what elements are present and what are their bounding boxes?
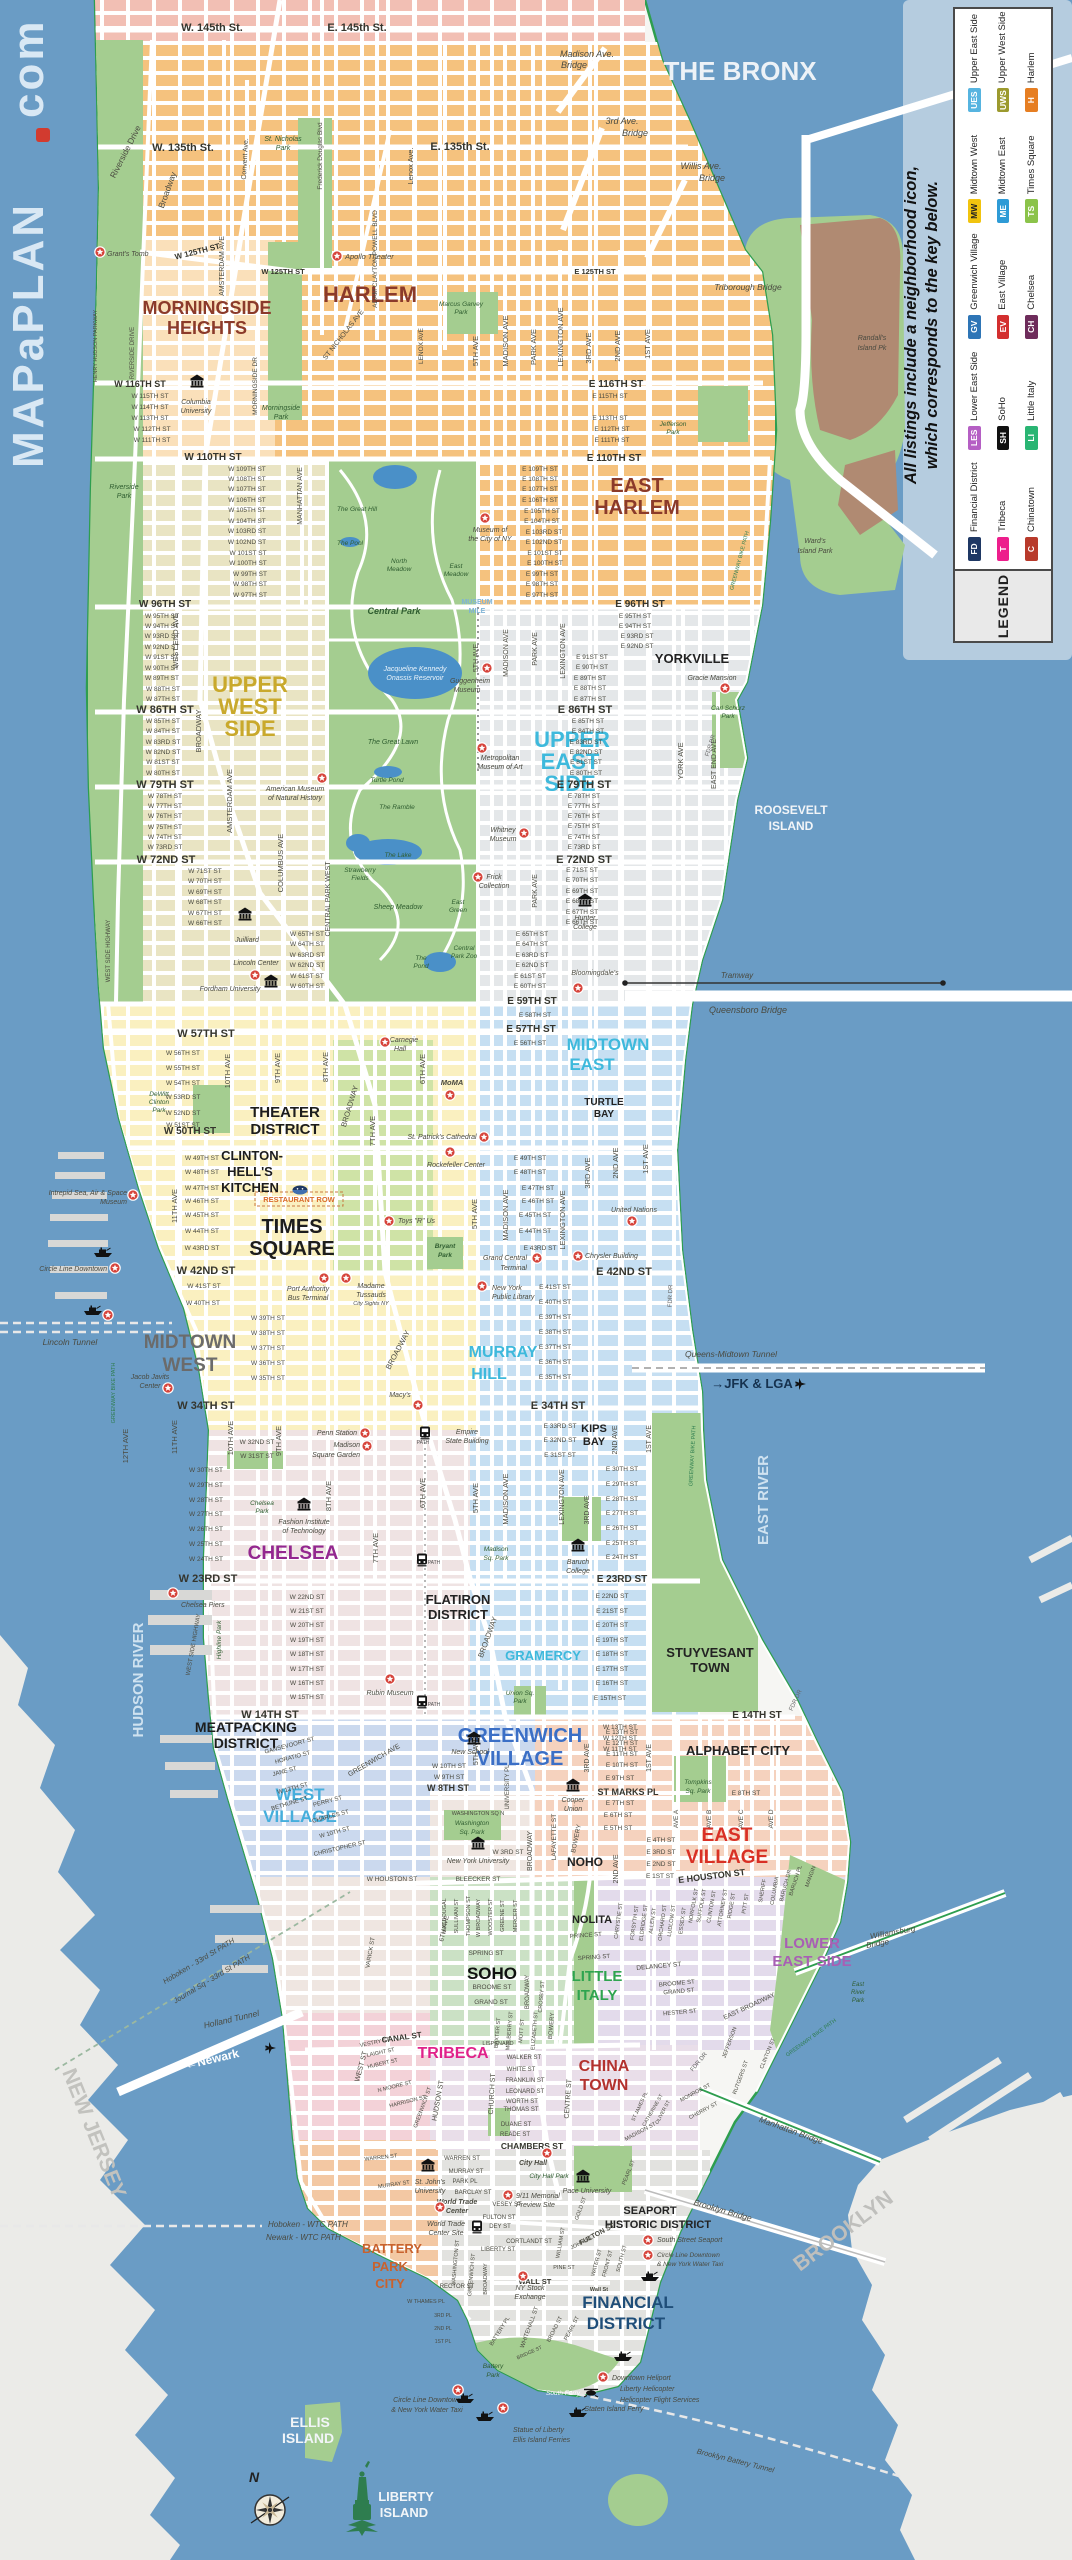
map-label: FDR DR (668, 1284, 675, 1308)
map-label: FLATIRON (426, 1592, 491, 1607)
map-label: 7TH AVE (371, 1533, 380, 1563)
map-label: GREENE ST (500, 1899, 506, 1931)
map-label: City Sights NY (353, 1301, 389, 1307)
map-label: E 93RD ST (621, 633, 654, 640)
map-label: E 14TH ST (732, 1710, 781, 1721)
legend-item-t: TTribeca (997, 460, 1010, 561)
map-label: Union Sq. (506, 1690, 535, 1697)
map-label: Turtle Pond (370, 777, 404, 784)
map-label: CLINTON- (221, 1148, 283, 1163)
map-label: Willis Ave. (681, 161, 722, 171)
map-label: 2ND AVE (611, 1147, 620, 1178)
map-label: St. John's (415, 2179, 446, 2186)
map-label: Circle Line Downtown (657, 2252, 720, 2259)
map-label: SQUARE (249, 1238, 335, 1260)
map-label: W 22ND ST (290, 1594, 325, 1601)
badge-icon (168, 1588, 178, 1598)
map-label: 3RD AVE (583, 1157, 592, 1188)
map-label: E 100TH ST (527, 560, 563, 567)
map-label: W 18TH ST (290, 1651, 324, 1658)
map-label: Onassis Reservoir (386, 675, 444, 682)
map-label: Frederick Douglas Blvd (317, 122, 324, 190)
map-label: Frick (486, 874, 502, 881)
map-label: East (449, 563, 463, 570)
map-label: E 109TH ST (522, 466, 558, 473)
map-label: E 3RD ST (646, 1849, 675, 1856)
map-label: University (181, 408, 212, 415)
legend-label: Tribeca (997, 501, 1008, 532)
map-label: 10TH AVE (223, 1054, 232, 1088)
map-label: E 87TH ST (574, 696, 606, 703)
map-label: Guggenheim (450, 678, 490, 685)
map-label: AVE B (706, 1810, 713, 1829)
map-label: E 33RD ST (544, 1423, 577, 1430)
map-label: E 25TH ST (606, 1540, 638, 1547)
map-label: E 101ST ST (527, 550, 562, 557)
badge-icon (498, 2403, 508, 2413)
map-label: Island Pk (858, 345, 887, 352)
map-label: E 113TH ST (592, 415, 627, 422)
map-label: E 81ST ST (570, 759, 602, 766)
legend-item-h: HHarlem (1025, 11, 1038, 112)
badge-icon (518, 2271, 528, 2281)
map-label: Ward's (804, 538, 826, 545)
map-label: AMSTERDAM AVE (225, 769, 234, 833)
map-label: Statue of Liberty (513, 2427, 564, 2434)
map-label: Terminal (500, 1265, 527, 1272)
map-label: Grand Central (483, 1255, 527, 1262)
badge-icon (627, 1216, 637, 1226)
map-label: & New York Water Taxi (657, 2261, 724, 2268)
map-label: & New York Water Taxi (391, 2407, 463, 2414)
map-label: HEIGHTS (167, 318, 247, 338)
map-label: W 97TH ST (233, 592, 267, 599)
map-label: W 8TH ST (427, 1783, 470, 1793)
map-label: SOHO (467, 1964, 517, 1983)
map-label: Queens-Midtown Tunnel (685, 1349, 778, 1359)
map-label: LOWER (784, 1935, 840, 1952)
map-label: Highline Park (216, 1620, 223, 1659)
map-label: W 125TH ST (261, 267, 305, 276)
map-label: Madison (334, 1442, 361, 1449)
map-label: MUSEUM (461, 599, 492, 606)
map-label: Tompkins (684, 1779, 712, 1786)
map-label: W 51ST ST (166, 1122, 200, 1129)
map-label: E 1ST ST (646, 1873, 674, 1880)
map-label: E 12TH ST (606, 1740, 638, 1747)
map-label: NOLITA (572, 1914, 612, 1926)
badge-icon (473, 872, 483, 882)
map-label: E 56TH ST (514, 1040, 546, 1047)
map-label: Park (666, 429, 680, 436)
legend-badge-ues: UES (968, 88, 981, 112)
badge-icon (163, 1383, 173, 1393)
map-label: W 73RD ST (148, 844, 183, 851)
map-label: The Ramble (379, 804, 415, 811)
badge-icon (532, 1253, 542, 1263)
map-label: E 17TH ST (596, 1666, 628, 1673)
map-label: W 71ST ST (188, 868, 222, 875)
map-label: W 53RD ST (166, 1094, 201, 1101)
legend-note-line1: All listings include a neighborhood icon… (901, 5, 922, 645)
map-label: Randall's (858, 335, 887, 342)
badge-icon (384, 1216, 394, 1226)
map-label: WEST SIDE HIGHWAY (106, 920, 112, 983)
map-label: E 63RD ST (516, 952, 549, 959)
map-label: Central (454, 945, 476, 952)
map-label: E 104TH ST (524, 518, 560, 525)
legend-label: Midtown East (997, 137, 1008, 194)
map-label: Park (513, 1698, 527, 1705)
map-label: W 70TH ST (188, 878, 222, 885)
map-label: W 98TH ST (233, 581, 267, 588)
legend-column-5: UESUpper East SideUWSUpper West SideHHar… (955, 9, 1051, 120)
map-label: Sq. Park (460, 1829, 486, 1836)
badge-icon (573, 983, 583, 993)
map-label: E 79TH ST (557, 779, 612, 791)
map-label: E 102ND ST (526, 539, 563, 546)
map-label: W 104TH ST (228, 518, 266, 525)
map-label: COLUMBUS AVE (276, 834, 285, 893)
map-label: EAST SIDE (772, 1953, 851, 1970)
map-label: E 4TH ST (647, 1837, 676, 1844)
legend-badge-ts: TS (1025, 199, 1038, 223)
map-label: LAFAYETTE ST (551, 1814, 558, 1861)
map-label: Cooper (562, 1797, 586, 1804)
map-label: Grant's Tomb (107, 251, 149, 258)
legend-title: LEGEND (955, 569, 1051, 641)
map-label: Pace University (563, 2188, 612, 2195)
map-label: W 108TH ST (228, 476, 266, 483)
map-label: HISTORIC DISTRICT (605, 2219, 711, 2231)
map-label: DUANE ST (501, 2122, 532, 2128)
badge-icon (128, 1190, 138, 1200)
map-label: E 60TH ST (514, 983, 546, 990)
map-label: E 2ND ST (646, 1861, 675, 1868)
map-label: VILLAGE (686, 1847, 768, 1868)
badge-icon (643, 2250, 653, 2260)
map-label: E 72ND ST (556, 854, 612, 866)
map-label: E. 145th St. (327, 22, 386, 34)
map-label: Tramway (721, 971, 754, 980)
map-label: 3RD AVE (584, 1495, 591, 1524)
map-label: E 37TH ST (539, 1344, 571, 1351)
map-label: LENOX AVE (418, 327, 425, 364)
map-label: E 85TH ST (572, 718, 604, 725)
map-label: HARLEM (323, 282, 417, 307)
map-label: NY Stock (515, 2285, 545, 2292)
map-label: W 54TH ST (166, 1080, 200, 1087)
map-label: MERCER ST (513, 1899, 519, 1932)
legend-item-c: CChinatown (1025, 460, 1038, 561)
legend-label: Financial District (969, 462, 980, 532)
map-label: E 65TH ST (516, 931, 548, 938)
map-label: PARK (372, 2259, 408, 2274)
map-label: 9TH AVE (273, 1053, 282, 1083)
map-label: W 69TH ST (188, 889, 222, 896)
map-label: MORNINGSIDE DR (252, 357, 259, 415)
map-label: Square Garden (312, 1452, 360, 1459)
map-label: KIPS (581, 1423, 607, 1435)
map-label: BROOME ST (472, 1984, 511, 1991)
map-label: KITCHEN (221, 1180, 279, 1195)
map-label: W 28TH ST (189, 1497, 223, 1504)
map-label: E 88TH ST (574, 685, 606, 692)
map-label: Jacob Javits (130, 1374, 170, 1381)
legend-label: Upper West Side (997, 11, 1008, 83)
map-label: W 74TH ST (148, 834, 182, 841)
map-label: 3RD PL (434, 2313, 452, 2319)
map-label: E. 135th St. (430, 141, 489, 153)
map-label: W 106TH ST (228, 497, 266, 504)
map-label: EAST RIVER (755, 1455, 772, 1545)
map-label: 8TH AVE (324, 1481, 333, 1511)
map-label: Hoboken - WTC PATH (268, 2220, 348, 2229)
map-label: W 40TH ST (186, 1300, 220, 1307)
map-label: 3RD AVE (584, 332, 593, 363)
map-label: Fashion Institute (278, 1519, 329, 1526)
badge-icon (380, 1037, 390, 1047)
map-label: W 35TH ST (251, 1375, 285, 1382)
legend-item-ts: TSTimes Square (1025, 122, 1038, 223)
map-label: W 89TH ST (145, 675, 179, 682)
map-label: Apollo Theater (344, 252, 394, 261)
legend-item-ch: CHChelsea (1025, 233, 1038, 338)
map-label: W 105TH ST (228, 507, 266, 514)
map-label: Sq. Park (686, 1788, 712, 1795)
map-label: E 29TH ST (606, 1481, 638, 1488)
map-label: W 109TH ST (228, 466, 266, 473)
map-label: Jefferson (659, 421, 687, 428)
map-label: 1ST AVE (643, 329, 652, 359)
legend-item-gv: GVGreenwich Village (968, 233, 981, 338)
map-label: E 111TH ST (595, 437, 630, 444)
map-label: ISLAND (282, 2430, 334, 2446)
badge-icon (477, 743, 487, 753)
badge-icon (317, 773, 327, 783)
map-label: GRAMERCY (505, 1648, 581, 1663)
map-label: W 25TH ST (189, 1541, 223, 1548)
map-label: St. Patrick's Cathedral (407, 1134, 476, 1141)
map-label: W 39TH ST (251, 1315, 285, 1322)
badge-icon (573, 1251, 583, 1261)
map-label: E 45TH ST (519, 1212, 551, 1219)
map-label: RIVERSIDE DRIVE (130, 327, 136, 379)
legend-item-uws: UWSUpper West Side (997, 11, 1010, 112)
map-label: Battery (483, 2363, 504, 2370)
map-label: 12TH AVE (121, 1429, 130, 1463)
map-label: THEATER (250, 1104, 320, 1121)
map-label: HELL'S (227, 1164, 273, 1179)
legend-badge-mw: MW (968, 199, 981, 223)
map-label: PATH (428, 1560, 441, 1566)
map-label: E 92ND ST (621, 643, 654, 650)
map-label: North (391, 558, 407, 565)
map-label: Intrepid Sea, Air & Space (49, 1190, 127, 1197)
map-label: W 56TH ST (166, 1050, 200, 1057)
map-label: E 11TH ST (606, 1751, 638, 1758)
legend-label: Little Italy (1026, 381, 1037, 421)
map-label: E 48TH ST (514, 1169, 546, 1176)
map-label: American Museum (265, 786, 325, 793)
map-label: W 3RD ST (492, 1849, 523, 1856)
map-label: W 62ND ST (290, 962, 325, 969)
map-label: Helicopter Flight Services (620, 2397, 700, 2404)
map-label: Rockefeller Center (427, 1162, 486, 1169)
map-label: E 40TH ST (539, 1299, 571, 1306)
map-label: W 9TH ST (434, 1774, 464, 1781)
map-label: Bloomingdale's (571, 970, 619, 977)
map-label: W 32ND ST (240, 1439, 275, 1446)
map-label: FULTON ST (483, 2215, 516, 2221)
map-label: The (415, 955, 427, 962)
map-label: Meadow (387, 566, 413, 573)
legend-badge-uws: UWS (997, 88, 1010, 112)
map-label: E 41ST ST (539, 1284, 571, 1291)
badge-icon (643, 2235, 653, 2245)
badge-icon (482, 663, 492, 673)
map-label: FRANKLIN ST (505, 2078, 544, 2084)
map-label: BROADWAY (525, 1975, 531, 2009)
governors-island (608, 2474, 668, 2526)
map-label: W 67TH ST (188, 910, 222, 917)
map-label: DISTRICT (587, 2314, 666, 2333)
badge-icon (598, 2372, 608, 2382)
legend-item-les: LESLower East Side (968, 349, 981, 450)
map-label: EAST (610, 475, 663, 497)
map-label: W 65TH ST (290, 931, 324, 938)
map-label: E 61ST ST (514, 973, 546, 980)
map-screenshot: MAPaPLANcomTHE BRONXNEW JERSEYBROOKLYNHU… (0, 0, 1072, 2560)
map-label: W BROADWAY (476, 1899, 482, 1938)
map-label: E 38TH ST (539, 1329, 571, 1336)
map-label: WEST (163, 1355, 218, 1376)
map-label: PARK AVE (529, 329, 538, 365)
map-label: W 78TH ST (148, 793, 182, 800)
map-label: CHINA (579, 2058, 630, 2075)
map-label: College (566, 1568, 590, 1575)
map-label: 11TH AVE (170, 1189, 179, 1223)
map-label: MEATPACKING (195, 1719, 297, 1735)
map-label: E 19TH ST (596, 1637, 628, 1644)
map-label: W 15TH ST (290, 1694, 324, 1701)
map-label: E 108TH ST (522, 476, 558, 483)
map-label: 2ND AVE (613, 330, 622, 361)
map-label: CENTRAL PARK WEST (325, 861, 332, 937)
map-label: W 85TH ST (146, 718, 180, 725)
legend-item-li: LILittle Italy (1025, 349, 1038, 450)
badge-icon (720, 683, 730, 693)
badge-icon (445, 1147, 455, 1157)
map-label: Morningside (262, 405, 300, 412)
map-label: HARLEM (594, 497, 680, 519)
map-label: Park (152, 1107, 166, 1114)
map-label: Strawberry (344, 867, 376, 874)
map-label: RESTAURANT ROW (263, 1195, 335, 1204)
map-label: W 107TH ST (228, 486, 266, 493)
map-label: UNIVERSITY PL (505, 1764, 511, 1810)
map-label: Fordham University (200, 986, 261, 993)
legend-label: Upper East Side (969, 14, 980, 83)
legend-column-2: LESLower East SideSHSoHoLILittle Italy (955, 347, 1051, 458)
map-label: W 31ST ST (240, 1453, 274, 1460)
map-label: Gracie Mansion (687, 675, 736, 682)
badge-icon (453, 2385, 463, 2395)
map-label: Rubin Museum (366, 1690, 413, 1697)
map-label: W 81ST ST (146, 759, 180, 766)
map-label: W 19TH ST (290, 1637, 324, 1644)
map-label: Sheep Meadow (374, 904, 424, 911)
dot-icon (940, 980, 946, 986)
legend-badge-h: H (1025, 88, 1038, 112)
map-label: E 83RD ST (570, 739, 603, 746)
map-label: E 105TH ST (524, 508, 560, 515)
map-label: The Great Lawn (368, 739, 418, 746)
map-label: Lincoln Tunnel (43, 1337, 99, 1347)
map-label: Exchange (514, 2294, 545, 2301)
badge-icon (341, 1273, 351, 1283)
map-label: E 27TH ST (606, 1510, 638, 1517)
map-label: St. Nicholas (264, 136, 302, 143)
legend-badge-me: ME (997, 199, 1010, 223)
map-label: W 42ND ST (177, 1265, 236, 1277)
map-label: E 116TH ST (589, 379, 643, 390)
map-label: W 16TH ST (290, 1680, 324, 1687)
map-label: Metropolitan (481, 755, 520, 762)
legend-column-4: MWMidtown WestMEMidtown EastTSTimes Squa… (955, 120, 1051, 231)
map-label: Bridge (622, 128, 648, 138)
map-label: 2ND AVE (613, 1854, 620, 1883)
map-label: WASHINGTON SQ N (452, 1811, 505, 1817)
map-label: E 62ND ST (516, 962, 549, 969)
map-label: E 110TH ST (587, 453, 641, 464)
map-label: E 57TH ST (506, 1024, 555, 1035)
map-label: W 102ND ST (228, 539, 266, 546)
map-label: WALKER ST (507, 2055, 542, 2061)
map-label: BAY (594, 1109, 615, 1120)
map-label: DEY ST (489, 2224, 511, 2230)
map-label: Bridge (561, 60, 587, 70)
map-label: W 61ST ST (290, 973, 324, 980)
map-label: Staten Island Ferry (584, 2406, 644, 2413)
map-label: STUYVESANT (666, 1645, 753, 1660)
badge-icon (95, 247, 105, 257)
map-label: 6TH AVE (418, 1054, 427, 1084)
legend-grid: FDFinancial DistrictTTribecaCChinatownLE… (955, 9, 1051, 569)
map-label: W 36TH ST (251, 1360, 285, 1367)
map-label: Union (564, 1806, 582, 1813)
map-label: Park (274, 414, 289, 421)
map-label: E 15TH ST (594, 1695, 626, 1702)
map-label: East (451, 899, 465, 906)
map-label: 6TH AVE (418, 1478, 427, 1508)
map-label: W. 145th St. (181, 22, 243, 34)
map-label: Chelsea (250, 1500, 274, 1507)
map-label: FINANCIAL (582, 2293, 674, 2312)
map-label: W 14TH ST (241, 1709, 299, 1721)
map-label: MAPaPLAN (4, 202, 53, 468)
map-label: PATH (428, 1702, 441, 1708)
map-label: Port Authority (287, 1286, 330, 1293)
map-label: LEXINGTON AVE (559, 1469, 566, 1525)
map-label: Museum of Art (477, 764, 523, 771)
map-label: 7TH AVE (368, 1116, 377, 1146)
map-label: MANHATTAN AVE (297, 467, 304, 525)
logo-dot (36, 128, 50, 142)
map-label: Island Park (797, 548, 833, 555)
map-label: Museum of (473, 527, 509, 534)
map-label: W 47TH ST (185, 1185, 219, 1192)
